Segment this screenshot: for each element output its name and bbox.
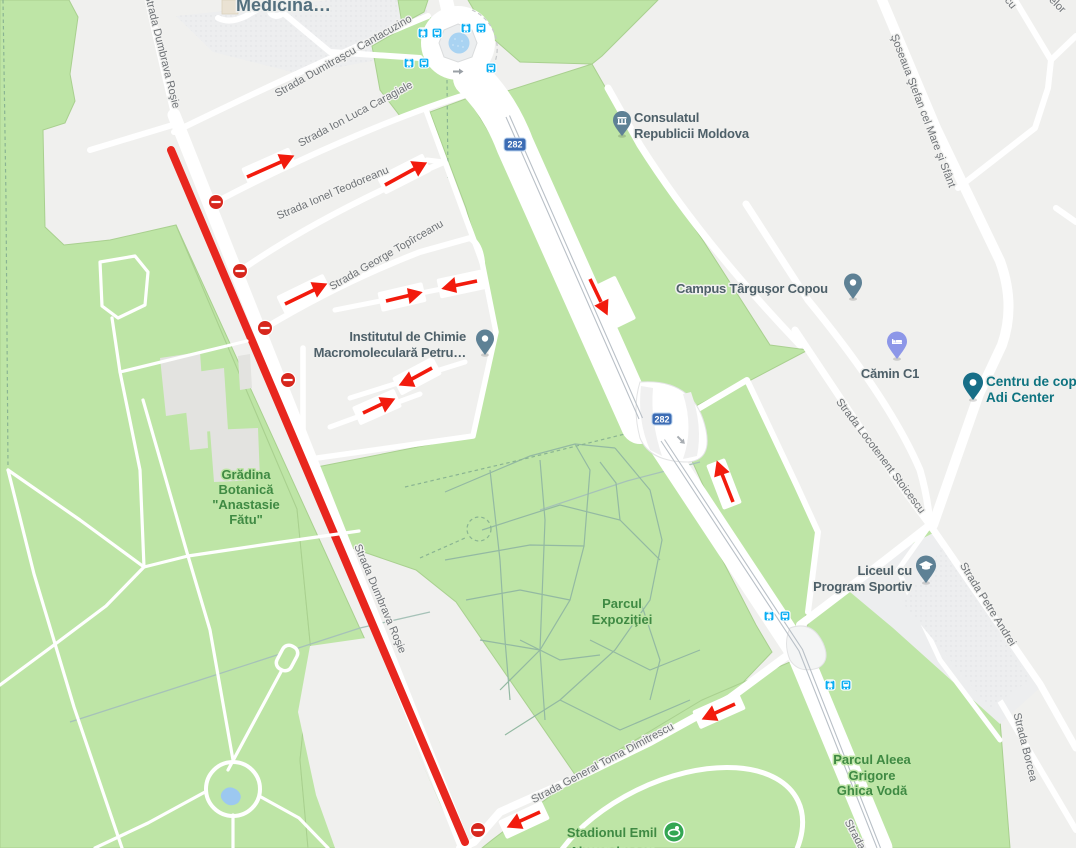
svg-text:Grădina: Grădina <box>221 467 271 482</box>
svg-text:Botanică: Botanică <box>219 482 275 497</box>
svg-text:Consulatul: Consulatul <box>634 110 699 125</box>
svg-text:Parcul: Parcul <box>602 596 642 611</box>
svg-text:Cămin C1: Cămin C1 <box>861 366 919 381</box>
svg-text:"Anastasie: "Anastasie <box>212 497 280 512</box>
svg-text:Expoziţiei: Expoziţiei <box>592 612 653 627</box>
svg-text:Institutul de Chimie: Institutul de Chimie <box>349 329 466 344</box>
svg-text:Liceul cu: Liceul cu <box>857 563 912 578</box>
svg-text:Campus Târguşor Copou: Campus Târguşor Copou <box>676 281 828 296</box>
svg-text:Republicii Moldova: Republicii Moldova <box>634 126 750 141</box>
svg-text:Parcul Aleea: Parcul Aleea <box>833 752 911 767</box>
svg-text:Adi Center: Adi Center <box>986 390 1055 405</box>
svg-text:282: 282 <box>507 140 522 150</box>
svg-text:Program Sportiv: Program Sportiv <box>813 579 913 594</box>
svg-text:Grigore: Grigore <box>849 768 896 783</box>
svg-text:Centru de copi: Centru de copi <box>986 374 1076 389</box>
svg-text:Macromoleculară Petru…: Macromoleculară Petru… <box>314 345 466 360</box>
svg-text:Ghica Vodă: Ghica Vodă <box>837 783 908 798</box>
svg-text:282: 282 <box>654 415 669 425</box>
svg-text:Alexandrescu: Alexandrescu <box>569 844 654 848</box>
svg-text:Fătu": Fătu" <box>229 512 263 527</box>
svg-text:Stadionul Emil: Stadionul Emil <box>567 825 657 840</box>
svg-text:Medicina…: Medicina… <box>236 0 331 15</box>
